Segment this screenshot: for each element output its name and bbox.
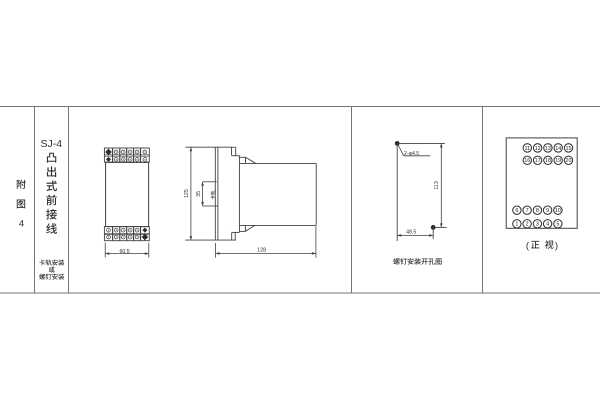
svg-text:8: 8 <box>536 208 539 214</box>
svg-text:3: 3 <box>536 222 539 228</box>
svg-text:4: 4 <box>19 219 24 230</box>
svg-text:16: 16 <box>524 158 530 164</box>
svg-text:4: 4 <box>546 222 549 228</box>
svg-text:1: 1 <box>515 222 518 228</box>
svg-text:5: 5 <box>556 222 559 228</box>
svg-text:10: 10 <box>555 208 561 214</box>
svg-text:60.5: 60.5 <box>119 249 129 255</box>
svg-text:35: 35 <box>196 191 202 197</box>
svg-text:6: 6 <box>515 208 518 214</box>
svg-text:19: 19 <box>555 158 561 164</box>
svg-text:12: 12 <box>535 146 541 152</box>
svg-text:2-φ4.5: 2-φ4.5 <box>404 151 419 157</box>
svg-text:128: 128 <box>257 247 266 253</box>
svg-text:113: 113 <box>434 181 440 189</box>
svg-text:17: 17 <box>535 158 541 164</box>
svg-text:18: 18 <box>545 158 551 164</box>
svg-text:13: 13 <box>545 146 551 152</box>
svg-text:11: 11 <box>524 146 530 152</box>
svg-text:15: 15 <box>566 146 572 152</box>
svg-text:9: 9 <box>546 208 549 214</box>
svg-text:20: 20 <box>566 158 572 164</box>
svg-text:7: 7 <box>526 208 529 214</box>
svg-text:14: 14 <box>555 146 561 152</box>
svg-text:): ) <box>555 240 558 251</box>
svg-text:125: 125 <box>184 189 190 198</box>
svg-text:2: 2 <box>526 222 529 228</box>
svg-text:48.5: 48.5 <box>406 229 416 235</box>
svg-text:SJ-4: SJ-4 <box>41 138 63 150</box>
